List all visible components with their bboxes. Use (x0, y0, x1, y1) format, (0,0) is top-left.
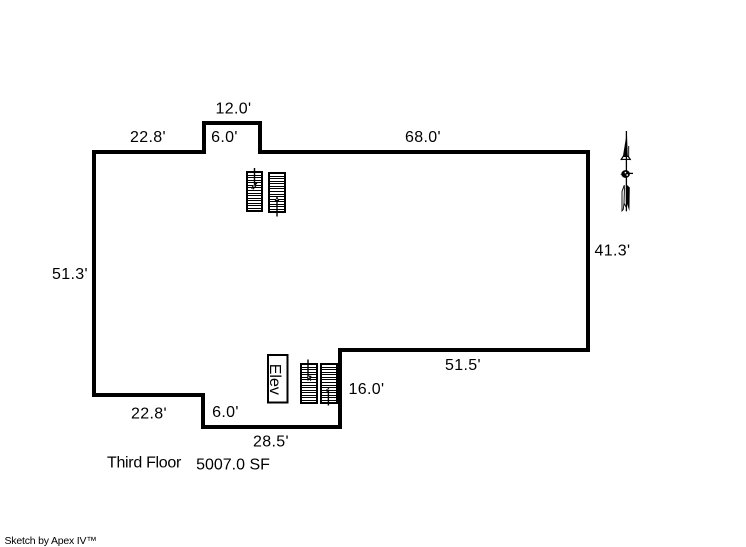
svg-text:5007.0 SF: 5007.0 SF (196, 457, 270, 474)
svg-text:6.0': 6.0' (211, 129, 238, 146)
svg-text:22.8': 22.8' (131, 406, 167, 423)
svg-text:Third Floor: Third Floor (107, 455, 182, 472)
svg-text:41.3': 41.3' (595, 243, 631, 260)
svg-text:16.0': 16.0' (349, 381, 385, 398)
svg-text:Sketch by Apex IV™: Sketch by Apex IV™ (5, 535, 97, 547)
svg-text:51.5': 51.5' (445, 357, 481, 374)
svg-text:51.3': 51.3' (52, 266, 88, 283)
svg-text:22.8': 22.8' (130, 129, 166, 146)
svg-text:28.5': 28.5' (253, 434, 289, 451)
svg-text:Elev: Elev (266, 364, 283, 395)
svg-text:68.0': 68.0' (405, 129, 441, 146)
svg-text:6.0': 6.0' (212, 404, 239, 421)
svg-text:12.0': 12.0' (216, 101, 252, 118)
